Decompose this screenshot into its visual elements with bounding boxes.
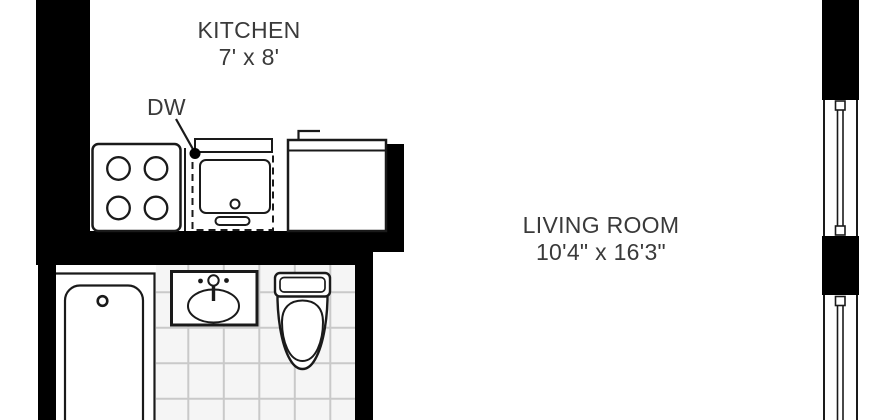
right-wall-top-segment [822, 0, 859, 100]
dishwasher-label: DW [147, 94, 186, 121]
bathtub-icon [56, 274, 155, 420]
tap-handle [198, 279, 203, 284]
living-room-dimensions: 10'4" x 16'3" [475, 239, 727, 266]
tap-handle [224, 278, 229, 283]
burner [145, 157, 168, 180]
toilet-tank [275, 273, 330, 297]
living-room-label: LIVING ROOM 10'4" x 16'3" [475, 212, 727, 266]
window-2 [824, 295, 857, 420]
kitchen-bottom-wall [36, 231, 404, 252]
floorplan-canvas: KITCHEN 7' x 8' DW LIVING ROOM 10'4" x 1… [0, 0, 870, 420]
kitchen-name: KITCHEN [124, 17, 374, 44]
burner [107, 197, 130, 220]
bathroom-top-wall [36, 252, 373, 265]
faucet [208, 275, 218, 285]
stove-icon [93, 144, 181, 231]
burner [145, 197, 168, 220]
burner [107, 157, 130, 180]
kitchen-left-wall [36, 0, 90, 252]
bathroom-right-wall [355, 265, 373, 420]
kitchen-room-label: KITCHEN 7' x 8' [124, 17, 374, 71]
right-wall-mid-segment [822, 236, 859, 295]
kitchen-dimensions: 7' x 8' [124, 44, 374, 71]
window-1 [824, 100, 857, 236]
bathroom-left-wall [38, 265, 56, 420]
kitchen-sink-icon [288, 131, 386, 231]
bathroom-sink-icon [172, 272, 258, 326]
drain [98, 296, 108, 306]
kitchen-right-wall [386, 144, 404, 231]
living-room-name: LIVING ROOM [475, 212, 727, 239]
